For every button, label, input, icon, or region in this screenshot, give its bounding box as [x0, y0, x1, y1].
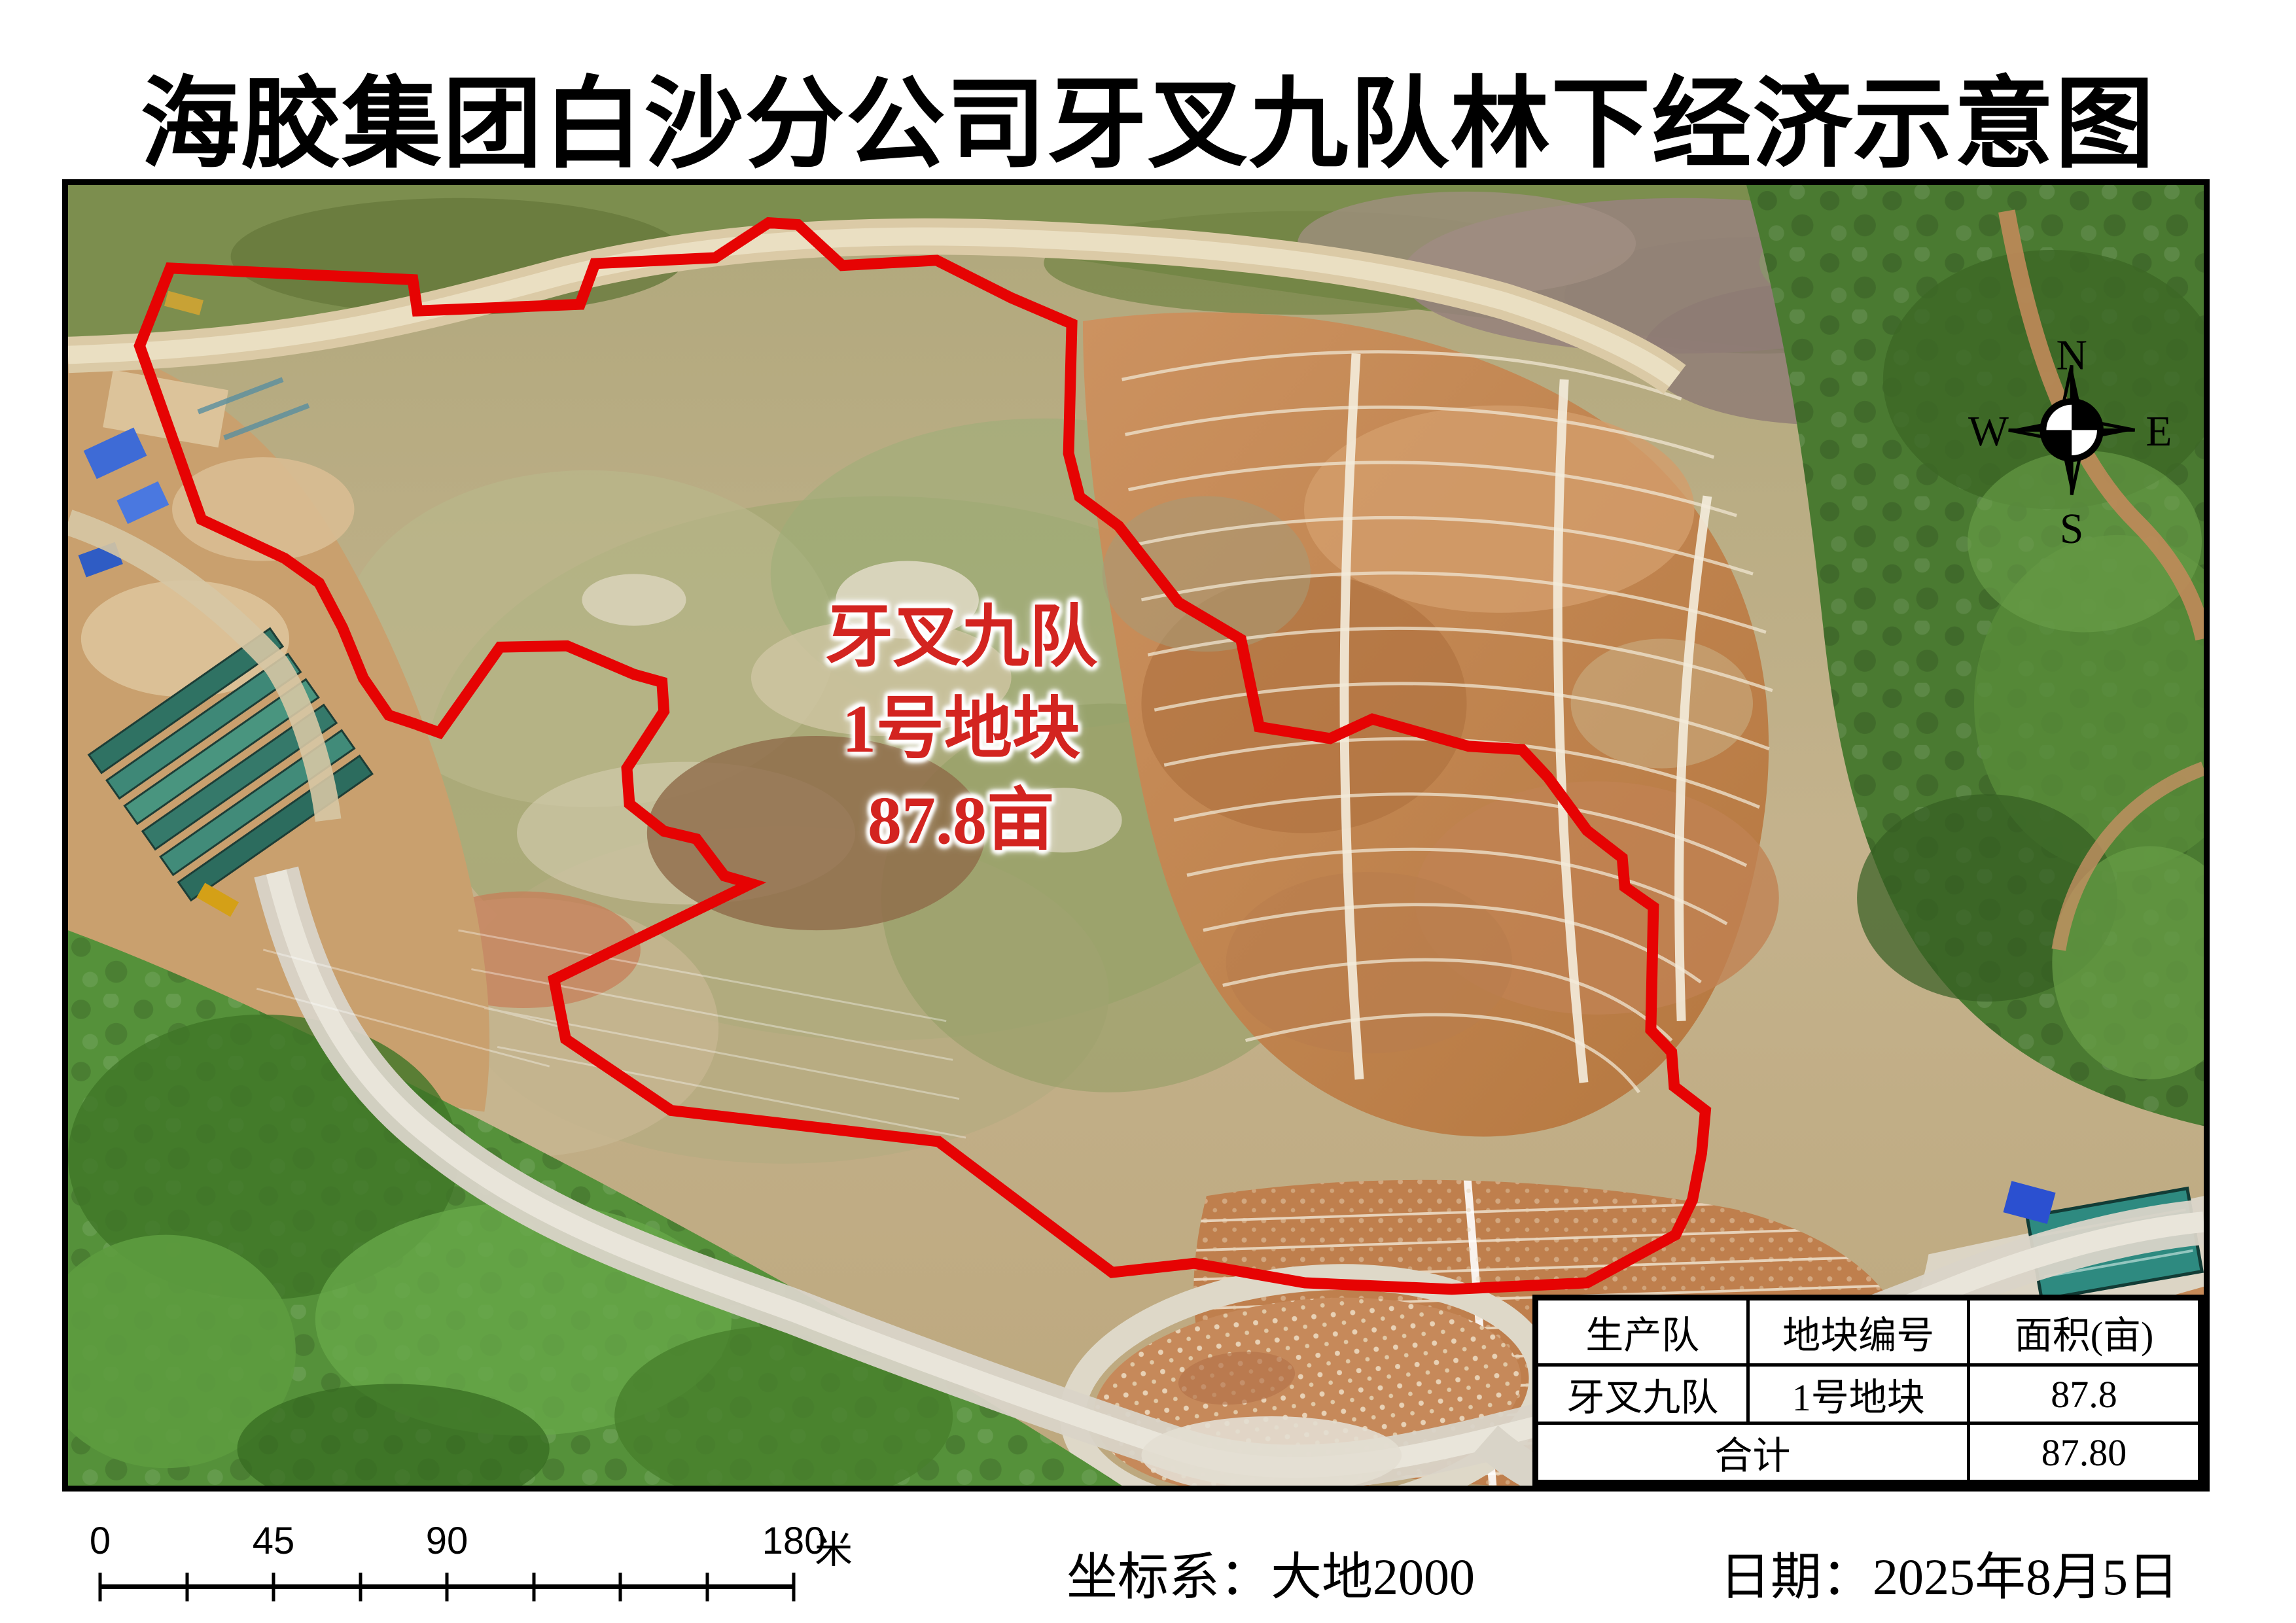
- plot-label-number: 1号地块: [758, 684, 1164, 775]
- page-title: 海胶集团白沙分公司牙叉九队林下经济示意图: [0, 43, 2296, 187]
- map-frame: N E S W 牙叉九队 1号地块 87.8亩 生产队 地块编号 面积(亩) 牙…: [62, 179, 2210, 1492]
- table-header-row: 生产队 地块编号 面积(亩): [1536, 1298, 2201, 1365]
- plot-label-team: 牙叉九队: [758, 592, 1164, 684]
- plot-label-area: 87.8亩: [758, 775, 1164, 867]
- map-date: 日期：2025年8月5日: [1720, 1536, 2179, 1609]
- compass-label-s: S: [2060, 506, 2083, 553]
- table-row: 牙叉九队 1号地块 87.8: [1536, 1365, 2201, 1423]
- compass-label-w: W: [1968, 408, 2009, 455]
- table-total-row: 合计 87.80: [1536, 1423, 2201, 1483]
- scale-label-0: 0: [90, 1519, 111, 1563]
- header-area: 面积(亩): [1969, 1298, 2201, 1365]
- cell-area: 87.8: [1969, 1365, 2201, 1423]
- plot-label: 牙叉九队 1号地块 87.8亩: [758, 592, 1164, 867]
- scale-label-90: 90: [426, 1519, 468, 1563]
- header-team: 生产队: [1536, 1298, 1748, 1365]
- area-table: 生产队 地块编号 面积(亩) 牙叉九队 1号地块 87.8 合计 87.80: [1532, 1295, 2204, 1486]
- total-label: 合计: [1536, 1423, 1969, 1483]
- scale-unit: 米: [815, 1519, 853, 1574]
- scale-bar: 0 45 90 180 米: [100, 1519, 885, 1611]
- total-area: 87.80: [1969, 1423, 2201, 1483]
- compass-label-e: E: [2146, 408, 2172, 455]
- scale-label-45: 45: [253, 1519, 295, 1563]
- coordinate-system: 坐标系：大地2000: [1067, 1536, 1475, 1609]
- compass-label-n: N: [2056, 332, 2087, 379]
- cell-plot: 1号地块: [1748, 1365, 1969, 1423]
- cell-team: 牙叉九队: [1536, 1365, 1748, 1423]
- header-plot: 地块编号: [1748, 1298, 1969, 1365]
